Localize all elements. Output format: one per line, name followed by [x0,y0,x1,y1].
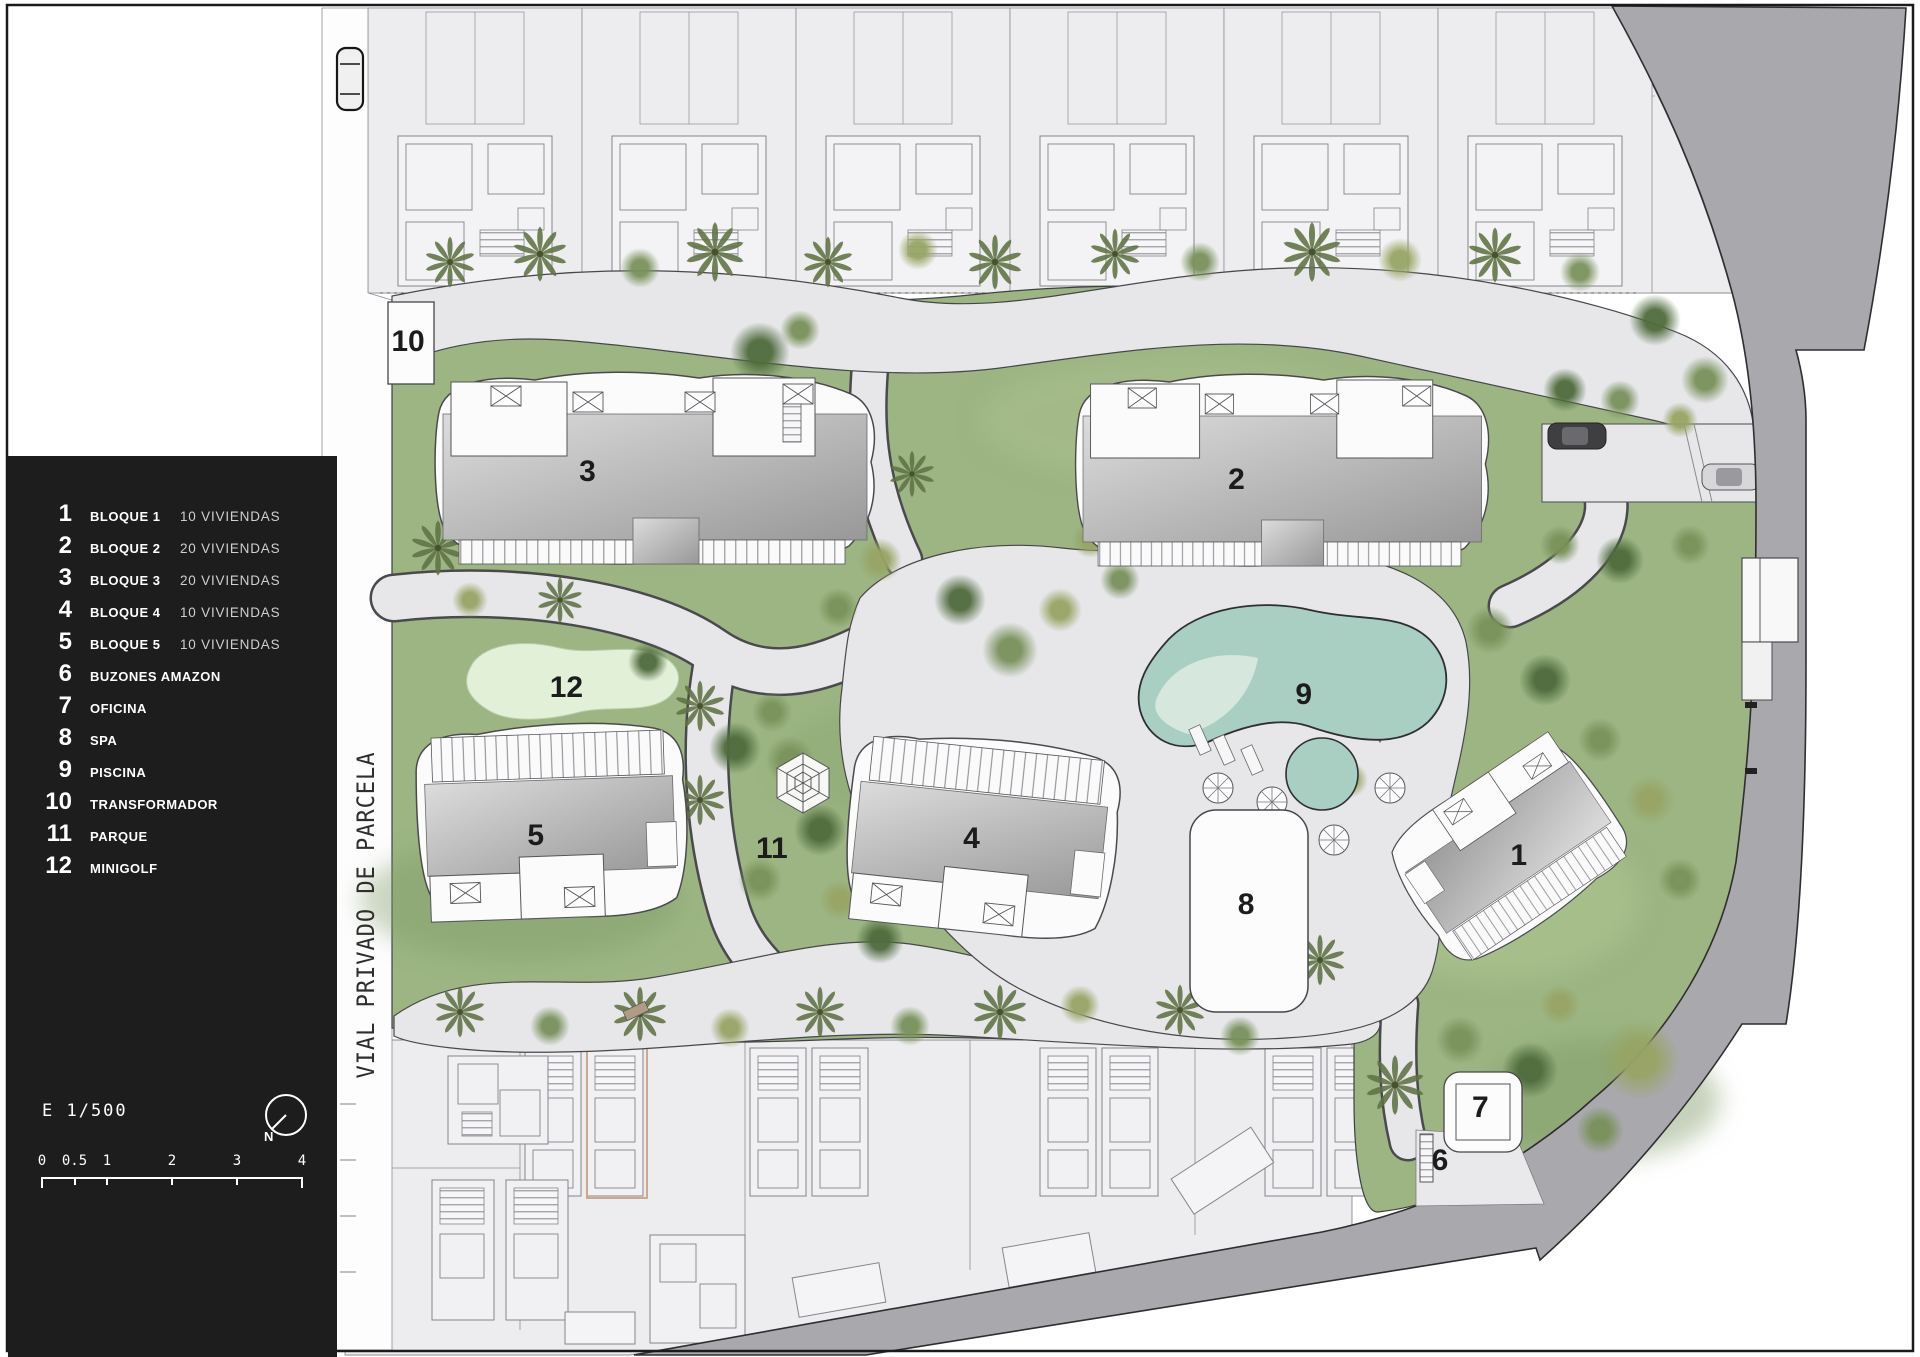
site-plan-page: 10 3 2 12 9 5 11 4 8 1 7 6 VIAL PRIVADO … [0,0,1920,1357]
legend-list: 1BLOQUE 110 VIVIENDAS 2BLOQUE 220 VIVIEN… [8,456,337,874]
legend-item: 10TRANSFORMADOR [28,788,337,810]
car-silver-icon [1702,464,1760,490]
block-2-building [1076,374,1489,566]
legend-item: 3BLOQUE 320 VIVIENDAS [28,564,337,586]
plan-label-parque: 11 [756,832,788,866]
legend-item: 2BLOQUE 220 VIVIENDAS [28,532,337,554]
block-5-building [414,720,690,923]
kids-pool [1286,738,1358,810]
legend-item: 4BLOQUE 410 VIVIENDAS [28,596,337,618]
villas-south [345,1040,1383,1355]
road-name-label: VIAL PRIVADO DE PARCELA [352,752,380,1079]
scale-bar: 0 0.5 1 2 3 4 [42,1153,302,1187]
villas-north [368,8,1732,293]
plan-label-oficina: 7 [1472,1091,1489,1125]
block-3-building [435,372,874,564]
legend-item: 11PARQUE [28,820,337,842]
plan-label-bloque-3: 3 [579,455,596,489]
plan-label-bloque-2: 2 [1228,463,1245,497]
legend-item: 5BLOQUE 510 VIVIENDAS [28,628,337,650]
north-compass-icon: N [256,1089,314,1151]
svg-text:N: N [264,1129,273,1144]
car-dark-icon [1548,423,1606,449]
block-4-building [838,725,1126,946]
legend-panel: 1BLOQUE 110 VIVIENDAS 2BLOQUE 220 VIVIEN… [8,456,337,1357]
plan-label-bloque-4: 4 [963,822,980,856]
legend-item: 12MINIGOLF [28,852,337,874]
plan-label-bloque-1: 1 [1510,839,1527,873]
legend-item: 6BUZONES AMAZON [28,660,337,682]
plan-label-piscina: 9 [1295,678,1312,712]
scale-area: E 1/500 N 0 0.5 1 2 3 4 [42,1101,314,1221]
plan-label-spa: 8 [1238,888,1255,922]
plan-label-transformador: 10 [391,325,424,359]
parked-car-icon [337,48,363,110]
legend-item: 1BLOQUE 110 VIVIENDAS [28,500,337,522]
plan-label-buzones: 6 [1432,1144,1449,1178]
plan-label-bloque-5: 5 [527,819,544,853]
legend-item: 9PISCINA [28,756,337,778]
legend-item: 8SPA [28,724,337,746]
legend-item: 7OFICINA [28,692,337,714]
plan-label-minigolf: 12 [550,671,583,705]
stairs-icon [783,404,801,442]
